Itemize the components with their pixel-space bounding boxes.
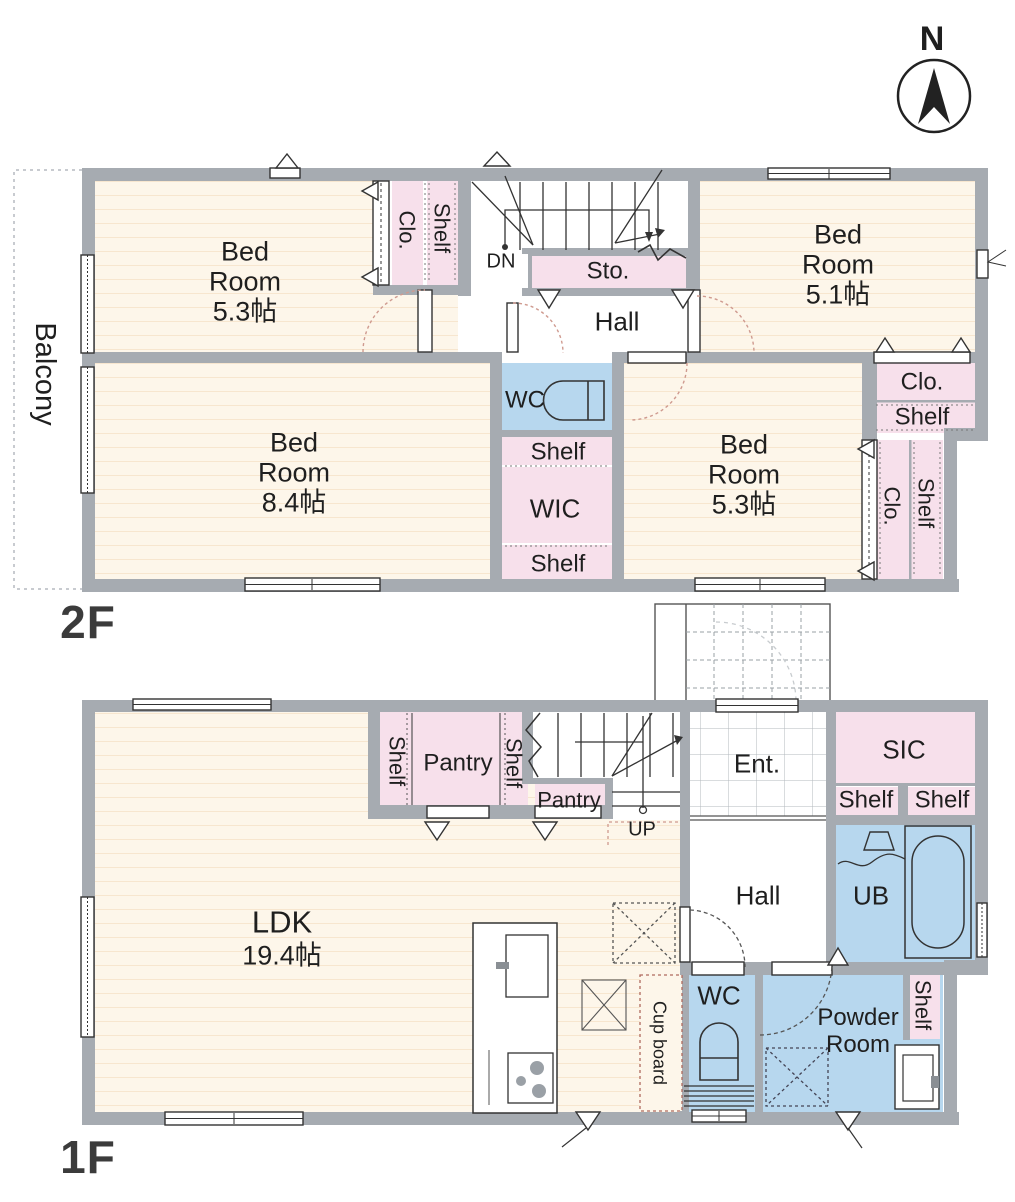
closet-ne-label: Clo. xyxy=(901,369,944,394)
sic-shelf-left-label: Shelf xyxy=(839,787,894,812)
storage-label: Sto. xyxy=(587,258,630,283)
pantry-under-stairs-label: Pantry xyxy=(537,788,601,811)
shelf-nw-label: Shelf xyxy=(430,203,453,253)
bedroom-ne-label: Bed Room 5.1帖 xyxy=(797,220,879,311)
compass xyxy=(898,60,970,132)
floor-plan: N Balcony Bed Room 5.3帖 Clo. Shelf DN St… xyxy=(0,0,1015,1202)
pantry-shelf-left-label: Shelf xyxy=(385,736,408,786)
shelf-above-wic-label: Shelf xyxy=(531,439,586,464)
bedroom-nw-label: Bed Room 5.3帖 xyxy=(204,237,286,328)
floor2-label: 2F xyxy=(60,598,116,646)
north-arrow-icon xyxy=(918,68,950,124)
floor1-plan xyxy=(81,604,988,1148)
powder-room-label: Powder Room xyxy=(808,1005,908,1059)
porch xyxy=(655,604,830,702)
hall-1f-label: Hall xyxy=(736,882,781,909)
bedroom-sw-label: Bed Room 8.4帖 xyxy=(253,428,335,519)
closet-nw-label: Clo. xyxy=(395,210,418,249)
shelf-below-wic-label: Shelf xyxy=(531,551,586,576)
balcony-label: Balcony xyxy=(30,322,60,425)
entrance-label: Ent. xyxy=(734,750,780,777)
closet-se-label: Clo. xyxy=(880,486,903,525)
wc-2f-label: WC xyxy=(505,387,545,412)
compass-north-label: N xyxy=(920,22,945,58)
wc-1f-label: WC xyxy=(697,982,740,1009)
kitchen-stove xyxy=(508,1053,553,1103)
hall-2f-label: Hall xyxy=(595,308,640,335)
stairs-down-label: DN xyxy=(487,252,516,273)
stairs-dn-start-dot xyxy=(502,244,508,250)
floor1-label: 1F xyxy=(60,1133,116,1181)
shelf-ne-label: Shelf xyxy=(895,404,950,429)
entry-step-edge xyxy=(690,816,826,820)
ldk-label: LDK 19.4帖 xyxy=(242,906,322,971)
kitchen-sink xyxy=(506,935,548,997)
pantry-shelf-right-label: Shelf xyxy=(502,738,525,788)
kitchen-faucet xyxy=(496,962,509,969)
marker-tails xyxy=(562,1128,862,1148)
sic-shelf-right-label: Shelf xyxy=(915,787,970,812)
kitchen-counter xyxy=(473,923,557,1113)
unit-bath-label: UB xyxy=(853,882,889,909)
stairs-up-label: UP xyxy=(628,820,656,841)
cupboard-label: Cup board xyxy=(650,1001,669,1085)
shelf-se-label: Shelf xyxy=(914,478,937,528)
floor2-plan xyxy=(14,152,1006,592)
pantry-label: Pantry xyxy=(423,750,492,775)
sic-label: SIC xyxy=(882,736,925,763)
powder-shelf-label: Shelf xyxy=(911,980,934,1030)
bathtub-outer xyxy=(905,826,971,958)
wic-label: WIC xyxy=(530,495,581,522)
stairs-1f-floor xyxy=(533,712,680,778)
bedroom-se-label: Bed Room 5.3帖 xyxy=(703,430,785,521)
